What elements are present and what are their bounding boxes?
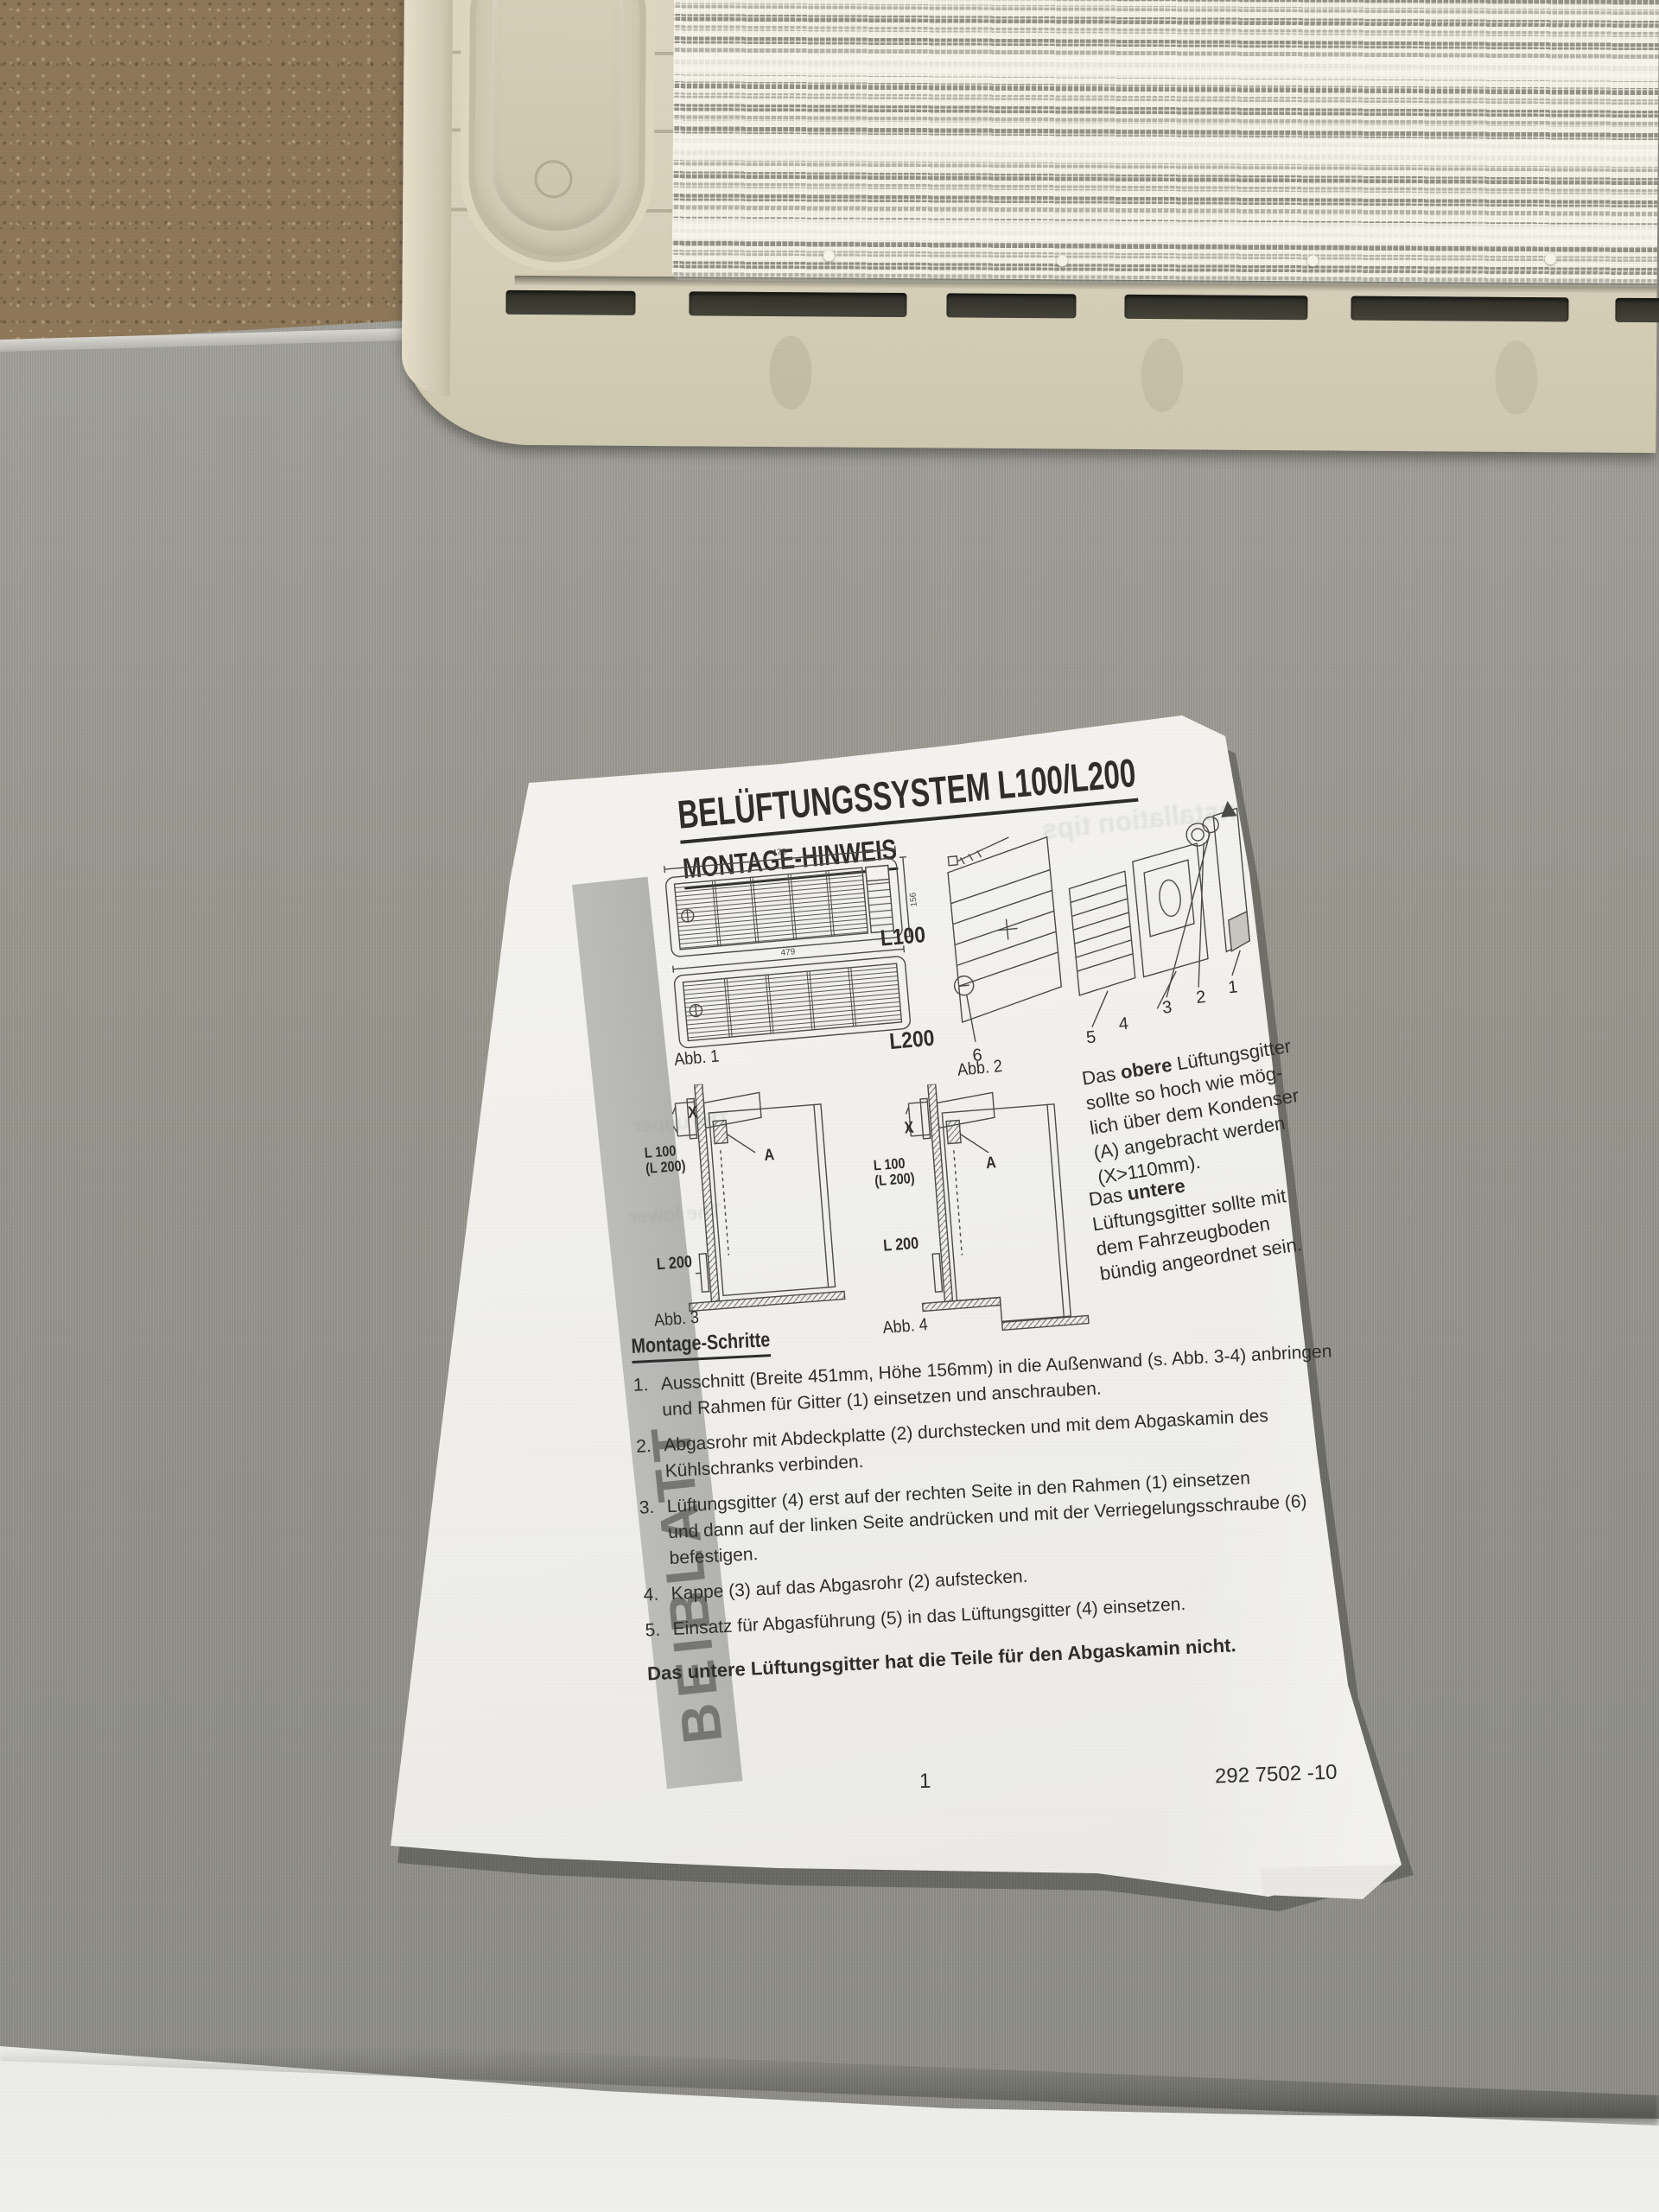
note-lower-pre: Das bbox=[1087, 1183, 1128, 1210]
label-l200-lower: L 200 bbox=[883, 1236, 919, 1255]
vent-left-flange bbox=[402, 0, 453, 396]
svg-text:479: 479 bbox=[772, 848, 787, 858]
step-line: Kappe (3) auf das Abgasrohr (2) aufsteck… bbox=[671, 1567, 1028, 1604]
step-number: 3. bbox=[639, 1494, 670, 1573]
vent-embossed-mark bbox=[534, 160, 572, 198]
step-number: 2. bbox=[636, 1433, 666, 1485]
photo-scene: BEIBLATT Installation tips The upper The… bbox=[0, 0, 1659, 2212]
step-line: Kühlschranks verbinden. bbox=[664, 1452, 864, 1481]
step-line: befestigen. bbox=[669, 1544, 759, 1568]
document-number: 292 7502 -10 bbox=[1215, 1761, 1338, 1789]
step-number: 5. bbox=[645, 1617, 673, 1644]
vent-slot bbox=[1351, 296, 1568, 322]
figure-abb1: 479 156 479 L100 L200 Abb. 1 bbox=[655, 836, 950, 1079]
mesh-pin bbox=[1057, 255, 1068, 266]
svg-text:2: 2 bbox=[1195, 988, 1206, 1007]
label-l100: L100 bbox=[880, 921, 927, 951]
svg-text:5: 5 bbox=[1085, 1027, 1096, 1047]
svg-text:156: 156 bbox=[908, 892, 918, 907]
section-drawing-abb4 bbox=[854, 1071, 1116, 1349]
steps-heading: Montage-Schritte bbox=[631, 1328, 771, 1363]
exploded-view-drawing: 6 5 4 3 2 1 bbox=[926, 789, 1269, 1077]
svg-text:3: 3 bbox=[1161, 998, 1173, 1018]
vent-chimney-recess bbox=[468, 0, 647, 263]
figure-abb3-caption: Abb. 3 bbox=[653, 1308, 700, 1332]
label-a: A bbox=[764, 1147, 775, 1164]
vent-mesh-screen bbox=[672, 0, 1659, 287]
figure-abb1-caption: Abb. 1 bbox=[673, 1046, 720, 1070]
vent-slot bbox=[946, 293, 1076, 318]
label-x: X bbox=[904, 1121, 914, 1137]
label-x: X bbox=[688, 1105, 698, 1122]
montage-steps: Montage-Schritte 1. Ausschnitt (Breite 4… bbox=[631, 1300, 1347, 1685]
label-model-line2: (L 200) bbox=[874, 1170, 916, 1190]
step-number: 1. bbox=[632, 1371, 663, 1424]
figure-abb2: 6 5 4 3 2 1 Abb. 2 bbox=[926, 788, 1278, 1082]
step-number: 4. bbox=[643, 1581, 671, 1609]
vent-slot bbox=[505, 290, 635, 315]
mesh-pin bbox=[1307, 255, 1319, 266]
label-model: L 100 (L 200) bbox=[873, 1155, 915, 1190]
svg-text:479: 479 bbox=[780, 947, 796, 957]
note-upper-bold: obere bbox=[1119, 1054, 1173, 1084]
svg-text:1: 1 bbox=[1227, 977, 1238, 997]
vent-slot bbox=[1615, 298, 1659, 322]
vent-lower-panel bbox=[505, 319, 1657, 422]
vent-slot bbox=[1124, 295, 1307, 320]
note-upper-pre: Das bbox=[1080, 1062, 1122, 1090]
svg-text:4: 4 bbox=[1118, 1014, 1129, 1034]
mesh-pin bbox=[1545, 253, 1556, 264]
section-drawing-abb3 bbox=[620, 1071, 881, 1340]
label-model: L 100 (L 200) bbox=[644, 1142, 686, 1177]
label-l200: L200 bbox=[888, 1025, 936, 1055]
vent-grille-product bbox=[401, 0, 1659, 453]
page-number: 1 bbox=[919, 1770, 931, 1794]
cork-board bbox=[0, 0, 427, 363]
step-text: Kappe (3) auf das Abgasrohr (2) aufsteck… bbox=[671, 1564, 1028, 1607]
label-model-line2: (L 200) bbox=[645, 1157, 686, 1177]
vent-slot bbox=[689, 291, 906, 317]
mesh-pin bbox=[823, 250, 835, 261]
label-a: A bbox=[985, 1155, 996, 1172]
label-l200-lower: L 200 bbox=[656, 1255, 692, 1273]
